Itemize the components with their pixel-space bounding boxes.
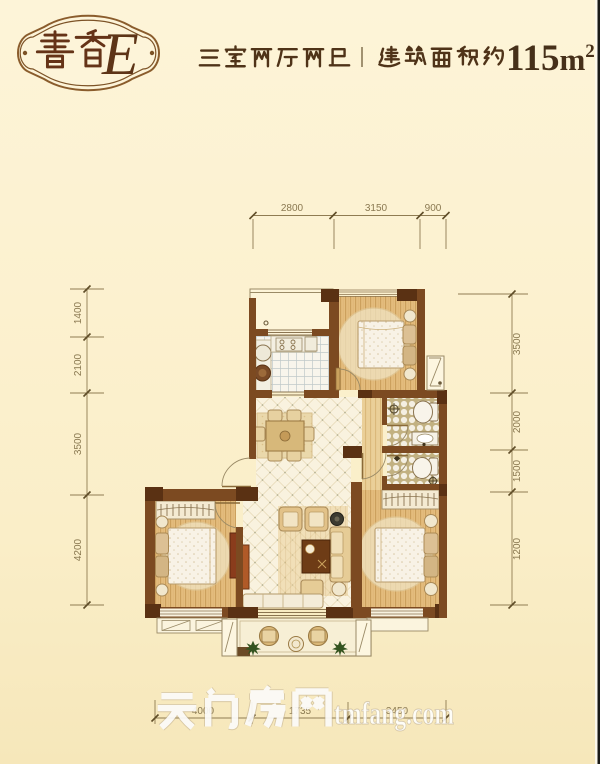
svg-text:E: E [101, 21, 139, 87]
svg-text:1200: 1200 [512, 537, 523, 560]
svg-text:2100: 2100 [73, 353, 84, 376]
svg-text:2800: 2800 [281, 203, 304, 214]
svg-text:3500: 3500 [73, 432, 84, 455]
svg-text:2000: 2000 [512, 410, 523, 433]
svg-text:1500: 1500 [512, 459, 523, 482]
svg-text:1400: 1400 [73, 301, 84, 324]
svg-text:tmfang.com: tmfang.com [334, 695, 454, 731]
svg-text:3500: 3500 [512, 332, 523, 355]
svg-text:900: 900 [425, 203, 442, 214]
svg-text:4200: 4200 [73, 538, 84, 561]
svg-text:3150: 3150 [365, 203, 388, 214]
svg-text:115m2: 115m2 [506, 38, 595, 79]
